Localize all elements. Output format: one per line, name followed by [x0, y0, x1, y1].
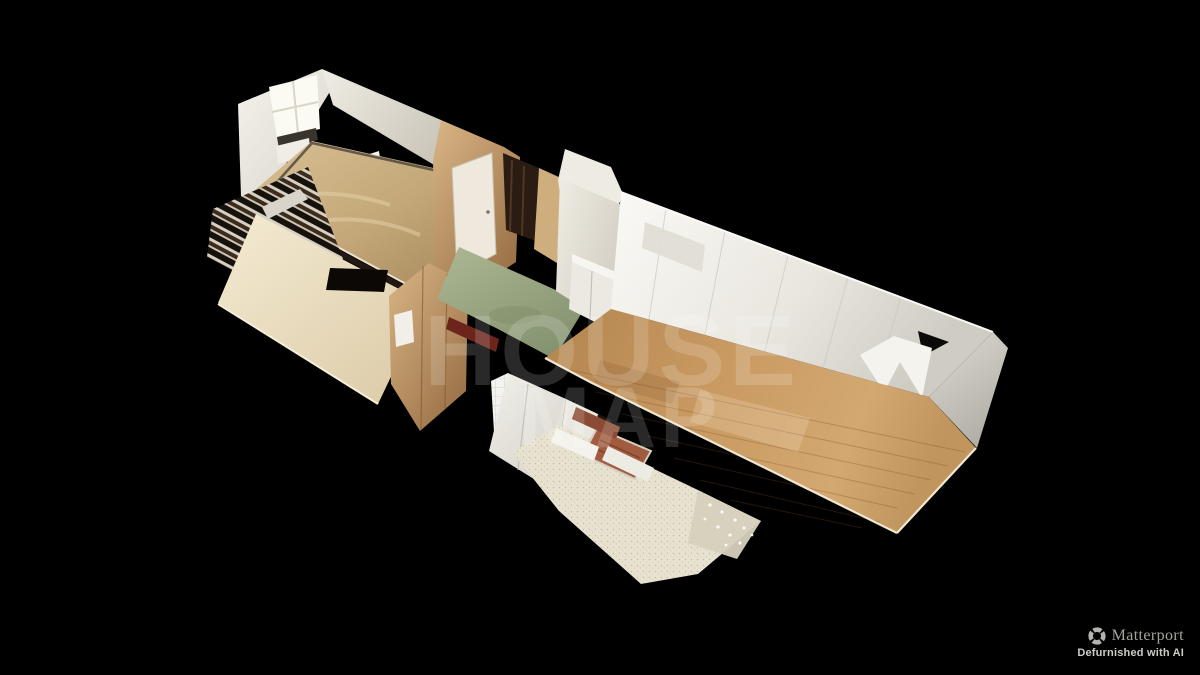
matterport-dollhouse-viewer: HOUSE MAP Matterport Defurnished with AI — [0, 0, 1200, 675]
matterport-wordmark: Matterport — [1112, 627, 1184, 645]
matterport-branding: Matterport Defurnished with AI — [1077, 627, 1184, 659]
door-handle — [486, 210, 490, 214]
watermark-line2: MAP — [518, 370, 721, 466]
defurnished-tagline: Defurnished with AI — [1077, 647, 1184, 659]
dollhouse-3d-model[interactable]: HOUSE MAP — [0, 0, 1200, 675]
cabinet-paper-note — [394, 310, 414, 347]
hall-doorway-opening — [503, 153, 539, 241]
floor-cutout-slot — [326, 268, 388, 292]
matterport-logo-link[interactable]: Matterport — [1077, 627, 1184, 645]
matterport-shutter-icon — [1088, 627, 1106, 645]
